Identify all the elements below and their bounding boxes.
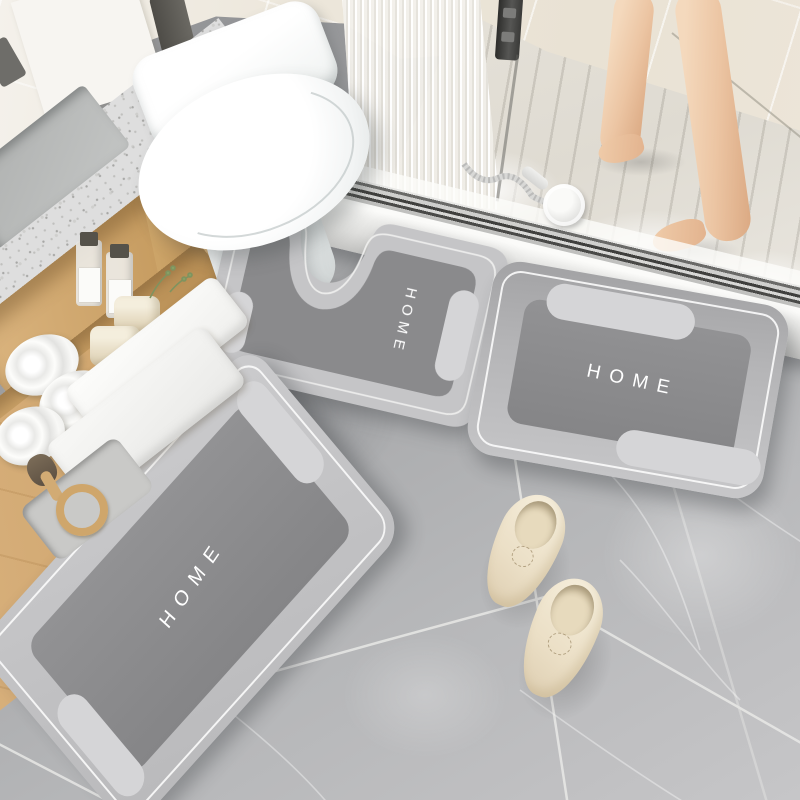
shower-head bbox=[543, 184, 585, 226]
glass-door-hinge bbox=[495, 0, 523, 61]
slipper-footbed bbox=[543, 578, 602, 642]
bottle-label bbox=[79, 268, 100, 302]
wooden-hand-mirror bbox=[56, 484, 108, 536]
floor-sheen bbox=[600, 470, 800, 640]
bottle-cap bbox=[110, 244, 129, 258]
bottle-cap bbox=[80, 232, 98, 246]
bathroom-scene: HOME HOME HOME bbox=[0, 0, 800, 800]
floor-sheen bbox=[340, 630, 510, 760]
